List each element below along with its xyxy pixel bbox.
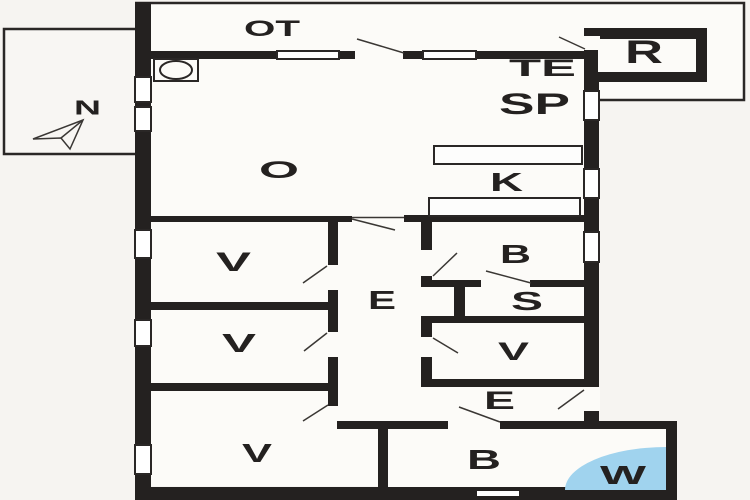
svg-text:K: K [490, 167, 523, 197]
svg-text:SP: SP [499, 88, 570, 121]
svg-text:V: V [216, 247, 251, 277]
svg-text:E: E [368, 285, 396, 315]
svg-text:TE: TE [509, 55, 576, 82]
svg-text:N: N [74, 98, 101, 120]
svg-text:OT: OT [244, 16, 301, 41]
svg-text:B: B [500, 239, 531, 269]
svg-text:E: E [484, 387, 515, 415]
svg-text:V: V [242, 438, 273, 468]
svg-text:V: V [222, 328, 257, 358]
svg-text:R: R [625, 34, 663, 70]
svg-text:W: W [600, 460, 647, 490]
svg-text:V: V [498, 338, 530, 366]
svg-text:O: O [259, 157, 299, 184]
svg-text:S: S [511, 286, 543, 316]
svg-text:B: B [467, 444, 501, 475]
